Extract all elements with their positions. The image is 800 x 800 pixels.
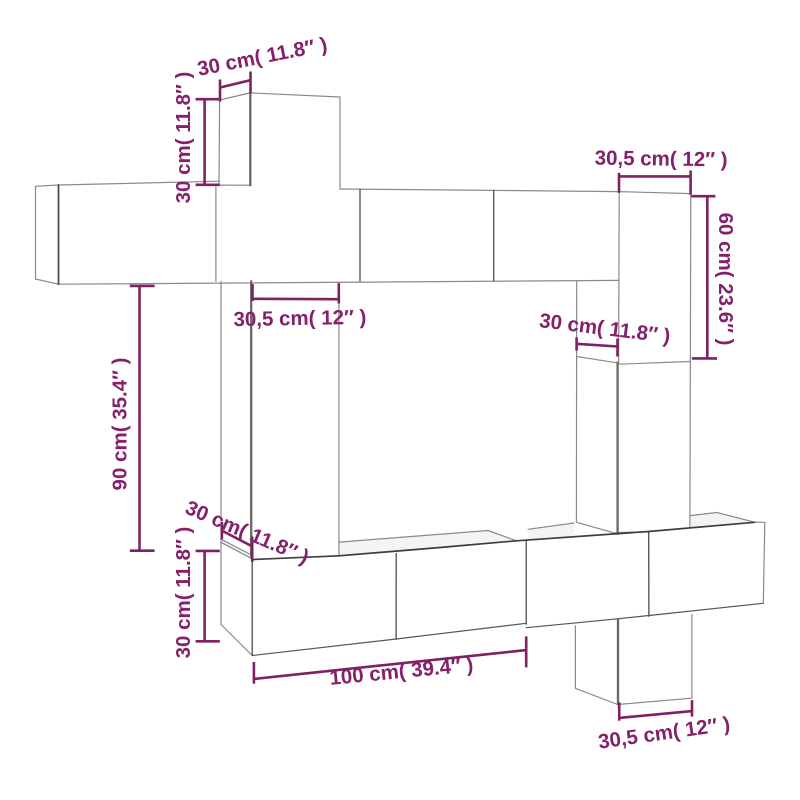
- svg-text:30 cm( 11.8″ ): 30 cm( 11.8″ ): [182, 496, 312, 569]
- svg-text:30 cm( 11.8″ ): 30 cm( 11.8″ ): [195, 33, 329, 81]
- svg-text:60 cm( 23.6″ ): 60 cm( 23.6″ ): [714, 213, 737, 346]
- svg-text:100 cm( 39.4″ ): 100 cm( 39.4″ ): [328, 653, 474, 690]
- svg-text:30 cm( 11.8″ ): 30 cm( 11.8″ ): [172, 527, 195, 659]
- svg-text:30,5 cm( 12″ ): 30,5 cm( 12″ ): [233, 306, 366, 331]
- svg-text:30 cm( 11.8″ ): 30 cm( 11.8″ ): [172, 72, 195, 204]
- svg-text:90 cm( 35.4″ ): 90 cm( 35.4″ ): [109, 358, 132, 491]
- svg-text:30,5 cm( 12″ ): 30,5 cm( 12″ ): [594, 147, 727, 172]
- svg-text:30 cm( 11.8″ ): 30 cm( 11.8″ ): [538, 309, 672, 348]
- svg-text:30,5 cm( 12″ ): 30,5 cm( 12″ ): [597, 712, 732, 753]
